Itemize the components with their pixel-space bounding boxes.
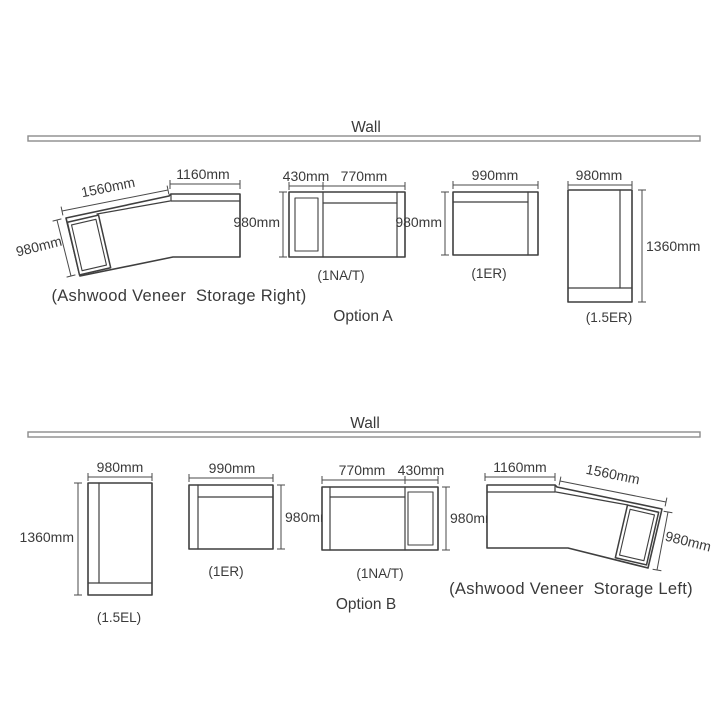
desk-storage-left: 1160mm 1560mm 980mm (Ashwood Veneer Stor…	[449, 459, 713, 598]
unit-15el-outline	[88, 483, 152, 595]
dim-label-770: 770mm	[341, 168, 388, 184]
unit-1nat-a: 980mm 430mm 770mm (1NA/T)	[233, 168, 405, 283]
dim-label-1560: 1560mm	[80, 174, 137, 201]
unit-15er: 980mm 1360mm (1.5ER)	[568, 167, 700, 325]
unit-15er-caption: (1.5ER)	[586, 310, 633, 325]
dim-label-980-top: 980mm	[576, 167, 623, 183]
dim-label-430: 430mm	[398, 462, 445, 478]
wall-label-bottom: Wall	[350, 415, 380, 432]
wall-bar-top	[28, 136, 700, 141]
unit-15el-caption: (1.5EL)	[97, 610, 141, 625]
unit-1er-a: 980mm 990mm (1ER)	[395, 167, 538, 281]
unit-1nat-a-caption: (1NA/T)	[317, 268, 364, 283]
unit-1er-b: 990mm 980mm (1ER)	[189, 460, 332, 579]
unit-1er-b-outline	[189, 485, 273, 549]
option-b-section: Wall 980mm 1360mm (1.5EL) 990mm	[20, 415, 713, 625]
option-a-section: Wall 1160mm 1560mm 980	[14, 119, 700, 325]
desk-options-diagram: Wall 1160mm 1560mm 980	[0, 0, 720, 720]
unit-1nat-b-caption: (1NA/T)	[356, 566, 403, 581]
wall-bar-bottom	[28, 432, 700, 437]
desk-right-caption: (Ashwood Veneer Storage Right)	[51, 287, 306, 305]
dim-label-770: 770mm	[339, 462, 386, 478]
unit-1nat-b: 770mm 430mm 980mm (1NA/T)	[322, 462, 497, 581]
dim-label-1560: 1560mm	[585, 461, 642, 488]
dim-label-980-side: 980mm	[395, 214, 442, 230]
dim-label-1160: 1160mm	[493, 459, 546, 475]
wall-label-top: Wall	[351, 119, 381, 136]
dim-label-980-end: 980mm	[14, 233, 63, 260]
unit-1er-a-caption: (1ER)	[471, 266, 506, 281]
unit-1er-b-caption: (1ER)	[208, 564, 243, 579]
dim-label-1160: 1160mm	[176, 166, 229, 182]
dim-label-990: 990mm	[472, 167, 519, 183]
dim-label-990: 990mm	[209, 460, 256, 476]
unit-15er-outline	[568, 190, 632, 302]
option-b-label: Option B	[336, 596, 396, 613]
dim-label-1360: 1360mm	[646, 238, 700, 254]
floorplan-page: Wall 1160mm 1560mm 980	[0, 0, 720, 720]
desk-left-caption: (Ashwood Veneer Storage Left)	[449, 580, 693, 598]
dim-label-1360: 1360mm	[20, 529, 74, 545]
dim-label-430: 430mm	[283, 168, 330, 184]
dim-label-980-top: 980mm	[97, 459, 144, 475]
option-a-label: Option A	[333, 308, 393, 325]
unit-15el: 980mm 1360mm (1.5EL)	[20, 459, 152, 625]
dim-label-980-end: 980mm	[664, 528, 713, 555]
unit-1nat-a-outline	[289, 192, 405, 257]
dim-label-980-side: 980mm	[233, 214, 280, 230]
desk-storage-right: 1160mm 1560mm 980mm (Ashwood Veneer Stor…	[14, 166, 306, 305]
